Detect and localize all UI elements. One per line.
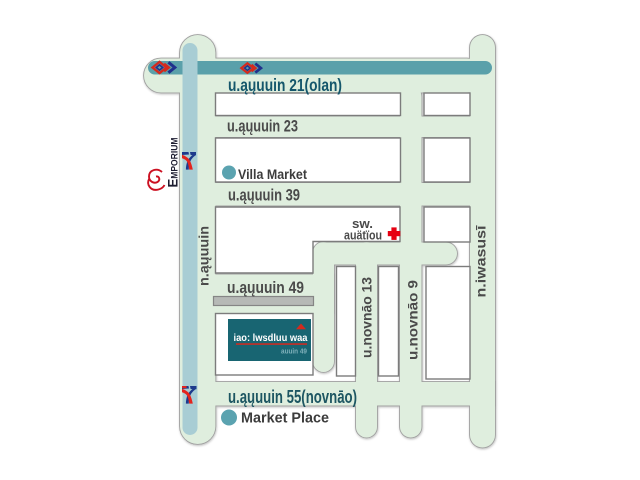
- svg-text:iao: lwsdluu waa: iao: lwsdluu waa: [234, 333, 308, 344]
- svg-text:u.novnāo 13: u.novnāo 13: [359, 277, 375, 358]
- svg-text:auätïou: auätïou: [344, 229, 382, 243]
- svg-text:u.ąųuuin 21(olan): u.ąųuuin 21(olan): [228, 75, 342, 95]
- svg-text:auuin 49: auuin 49: [281, 347, 307, 356]
- svg-text:u.novnāo 9: u.novnāo 9: [405, 280, 421, 360]
- svg-text:Villa Market: Villa Market: [238, 167, 307, 182]
- svg-text:Market Place: Market Place: [241, 411, 329, 427]
- svg-text:u.ąųuuin 23: u.ąųuuin 23: [227, 117, 298, 136]
- svg-text:u.ąųuuin 55(novnāo): u.ąųuuin 55(novnāo): [228, 387, 357, 407]
- svg-text:EMPORIUM: EMPORIUM: [166, 138, 181, 188]
- svg-text:n.iwasusī: n.iwasusī: [473, 224, 489, 297]
- svg-text:u.ąųuuin 39: u.ąųuuin 39: [228, 186, 300, 205]
- svg-text:n.ąųuuin: n.ąųuuin: [196, 226, 212, 286]
- svg-text:u.ąųuuin 49: u.ąųuuin 49: [227, 278, 304, 297]
